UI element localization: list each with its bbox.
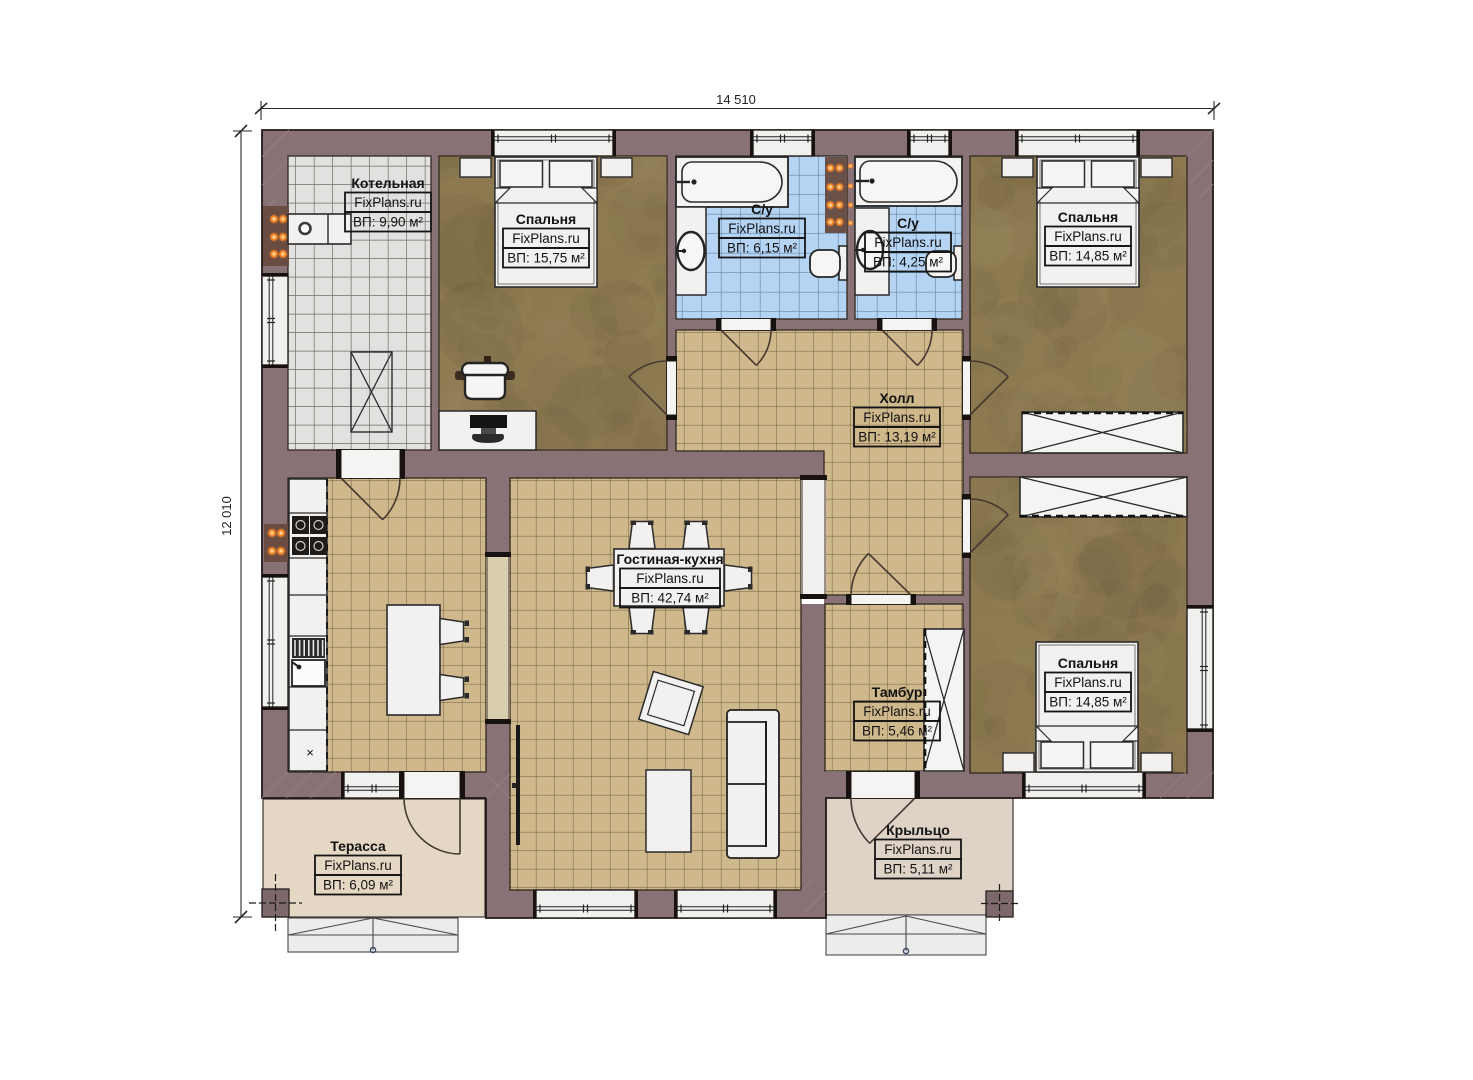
- svg-text:FixPlans.ru: FixPlans.ru: [512, 231, 580, 246]
- svg-text:ВП: 14,85 м²: ВП: 14,85 м²: [1049, 695, 1127, 710]
- svg-text:Холл: Холл: [879, 390, 914, 406]
- svg-text:Спальня: Спальня: [1058, 655, 1118, 671]
- svg-text:ВП: 4,25 м²: ВП: 4,25 м²: [873, 255, 944, 270]
- svg-text:Терасса: Терасса: [330, 838, 386, 854]
- svg-text:ВП: 5,46 м²: ВП: 5,46 м²: [862, 724, 933, 739]
- svg-text:Тамбур: Тамбур: [872, 684, 923, 700]
- svg-text:ВП: 13,19 м²: ВП: 13,19 м²: [858, 430, 936, 445]
- svg-text:14 510: 14 510: [716, 92, 756, 107]
- svg-text:FixPlans.ru: FixPlans.ru: [874, 235, 942, 250]
- svg-text:FixPlans.ru: FixPlans.ru: [636, 571, 704, 586]
- svg-text:ВП: 15,75 м²: ВП: 15,75 м²: [507, 251, 585, 266]
- svg-text:ВП: 6,15 м²: ВП: 6,15 м²: [727, 241, 798, 256]
- svg-text:×: ×: [306, 745, 314, 760]
- svg-text:ВП: 14,85 м²: ВП: 14,85 м²: [1049, 249, 1127, 264]
- svg-text:FixPlans.ru: FixPlans.ru: [1054, 675, 1122, 690]
- svg-text:FixPlans.ru: FixPlans.ru: [354, 195, 422, 210]
- svg-text:С/у: С/у: [751, 201, 773, 217]
- svg-text:ВП: 9,90 м²: ВП: 9,90 м²: [353, 215, 424, 230]
- svg-text:Котельная: Котельная: [351, 175, 424, 191]
- svg-text:FixPlans.ru: FixPlans.ru: [863, 704, 931, 719]
- svg-text:FixPlans.ru: FixPlans.ru: [728, 221, 796, 236]
- svg-text:Спальня: Спальня: [1058, 209, 1118, 225]
- svg-text:12 010: 12 010: [219, 496, 234, 536]
- svg-text:Крыльцо: Крыльцо: [886, 822, 950, 838]
- svg-text:ВП: 42,74 м²: ВП: 42,74 м²: [631, 591, 709, 606]
- svg-text:ВП: 6,09 м²: ВП: 6,09 м²: [323, 878, 394, 893]
- svg-text:FixPlans.ru: FixPlans.ru: [324, 858, 392, 873]
- svg-text:Спальня: Спальня: [516, 211, 576, 227]
- svg-text:FixPlans.ru: FixPlans.ru: [863, 410, 931, 425]
- svg-text:С/у: С/у: [897, 215, 919, 231]
- svg-text:FixPlans.ru: FixPlans.ru: [1054, 229, 1122, 244]
- svg-text:FixPlans.ru: FixPlans.ru: [884, 842, 952, 857]
- svg-text:ВП: 5,11 м²: ВП: 5,11 м²: [883, 862, 953, 877]
- svg-text:Гостиная-кухня: Гостиная-кухня: [616, 551, 723, 567]
